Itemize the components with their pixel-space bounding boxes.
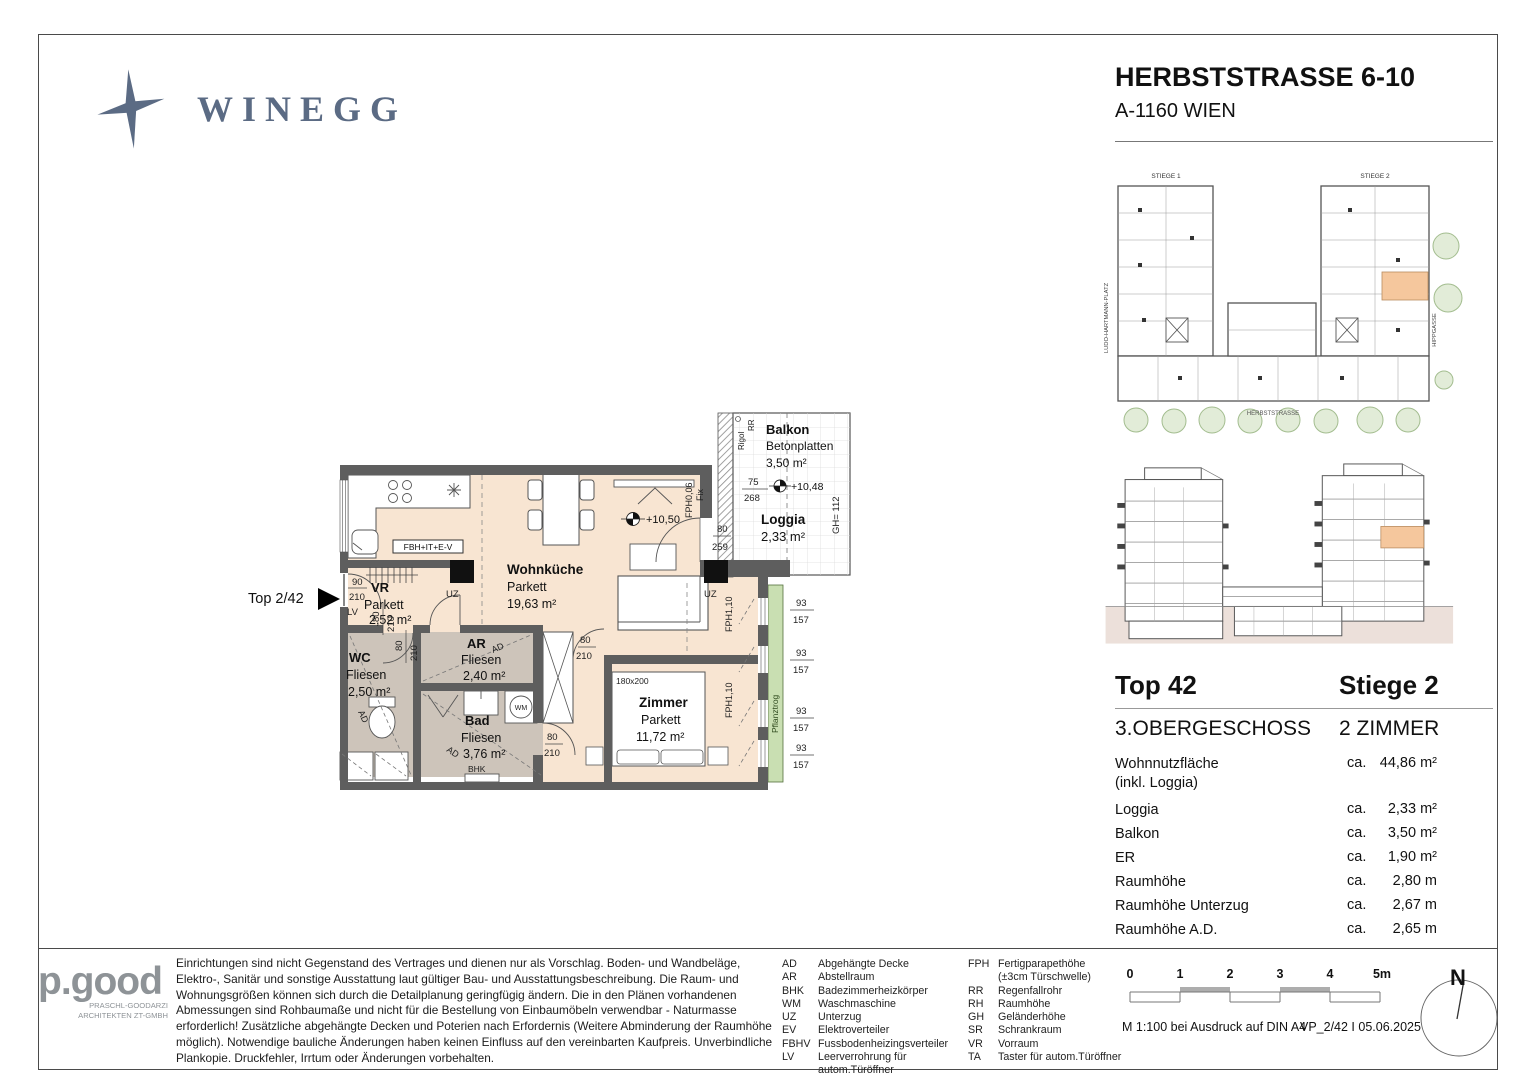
elevation-value-balcony: +10,48 — [791, 481, 824, 493]
svg-text:Balkon: Balkon — [766, 422, 809, 437]
svg-text:210: 210 — [386, 616, 397, 632]
svg-text:Fliesen: Fliesen — [346, 668, 386, 682]
svg-text:80: 80 — [717, 524, 728, 535]
svg-text:75: 75 — [748, 477, 759, 488]
detail-row: Balkon ca.3,50 m² — [1115, 825, 1493, 849]
bathroom-radiator — [465, 774, 499, 782]
svg-text:5m: 5m — [1373, 967, 1391, 981]
details-separator — [1115, 708, 1493, 709]
detail-row: Wohnnutzfläche (inkl. Loggia) ca.44,86 m… — [1115, 755, 1493, 801]
unit-number: Top 42 — [1115, 670, 1197, 700]
unit-details-panel: Top 42 Stiege 2 3.OBERGESCHOSS 2 ZIMMER … — [1115, 670, 1493, 945]
detail-row: Raumhöhe Unterzug ca.2,67 m — [1115, 897, 1493, 921]
svg-text:WC: WC — [349, 650, 371, 665]
north-arrow: N — [1412, 960, 1507, 1062]
svg-text:AR: AR — [467, 636, 486, 651]
wardrobe — [543, 632, 573, 723]
project-title: HERBSTSTRASSE 6-10 — [1115, 62, 1415, 93]
sink-icon — [352, 530, 378, 554]
svg-text:Fliesen: Fliesen — [461, 731, 501, 745]
winegg-logo: WINEGG — [95, 66, 407, 152]
svg-text:80: 80 — [580, 635, 591, 646]
elevation-value: +10,50 — [646, 514, 680, 526]
svg-text:157: 157 — [793, 723, 809, 734]
svg-text:4: 4 — [1327, 967, 1334, 981]
scale-note: M 1:100 bei Ausdruck auf DIN A4 — [1122, 1020, 1306, 1034]
svg-text:Zimmer: Zimmer — [639, 695, 689, 710]
svg-text:93: 93 — [796, 743, 807, 754]
svg-text:93: 93 — [796, 706, 807, 717]
svg-text:Wohnküche: Wohnküche — [507, 562, 584, 577]
svg-text:210: 210 — [544, 748, 560, 759]
svg-text:157: 157 — [793, 665, 809, 676]
svg-text:FPH0,06: FPH0,06 — [684, 482, 694, 518]
svg-text:80: 80 — [371, 611, 382, 622]
svg-text:FPH1,10: FPH1,10 — [724, 682, 734, 718]
svg-text:0: 0 — [1127, 967, 1134, 981]
svg-text:Loggia: Loggia — [761, 512, 806, 527]
svg-text:3,76 m²: 3,76 m² — [463, 747, 505, 761]
title-separator — [1115, 141, 1493, 142]
svg-text:259: 259 — [712, 542, 728, 553]
nightstand — [586, 747, 603, 765]
brand-name: WINEGG — [197, 88, 407, 130]
svg-text:90: 90 — [352, 577, 363, 588]
svg-text:Parkett: Parkett — [641, 713, 681, 727]
svg-text:LV: LV — [347, 607, 359, 618]
sink-symbol-icon — [447, 483, 461, 497]
svg-text:180x200: 180x200 — [616, 676, 649, 686]
plan-version: VP_2/42 I 05.06.2025 — [1300, 1020, 1421, 1034]
svg-text:Rigol: Rigol — [737, 432, 746, 450]
street-left-label: LUDO-HARTMANN-PLATZ — [1104, 282, 1110, 353]
site-plan: STIEGE 1 STIEGE 2 LUDO-HARTMANN-PLATZ HI… — [1078, 158, 1508, 443]
svg-text:Betonplatten: Betonplatten — [766, 439, 833, 453]
stiege2-label: STIEGE 2 — [1360, 173, 1390, 180]
svg-text:19,63 m²: 19,63 m² — [507, 597, 556, 611]
svg-text:3: 3 — [1277, 967, 1284, 981]
fbh-label: FBH+IT+E-V — [404, 542, 453, 552]
building-sections — [1083, 462, 1503, 667]
washbasin — [464, 691, 498, 715]
svg-text:Top 2/42: Top 2/42 — [248, 591, 304, 607]
project-address: A-1160 WIEN — [1115, 100, 1236, 123]
svg-text:3,50 m²: 3,50 m² — [766, 456, 807, 470]
unit-arrow-icon — [318, 588, 340, 610]
svg-text:1: 1 — [1177, 967, 1184, 981]
architect-logo-text: p.good — [38, 964, 168, 999]
svg-text:BHK: BHK — [468, 764, 486, 774]
staircase-label: Stiege 2 — [1339, 670, 1439, 701]
winegg-star-icon — [95, 66, 169, 152]
svg-text:210: 210 — [576, 651, 592, 662]
svg-text:VR: VR — [371, 580, 390, 595]
svg-text:FPH1,10: FPH1,10 — [724, 596, 734, 632]
svg-text:RR: RR — [747, 419, 756, 431]
detail-row: ER ca.1,90 m² — [1115, 849, 1493, 873]
svg-text:11,72 m²: 11,72 m² — [636, 730, 684, 744]
unit-marker: Top 2/42 — [248, 588, 340, 610]
svg-text:GH= 112: GH= 112 — [831, 496, 842, 534]
highlighted-unit — [1382, 272, 1428, 300]
svg-text:93: 93 — [796, 648, 807, 659]
svg-text:2: 2 — [1227, 967, 1234, 981]
nightstand — [708, 747, 728, 765]
street-bottom-label: HERBSTSTRASSE — [1247, 411, 1299, 417]
svg-text:93: 93 — [796, 598, 807, 609]
svg-text:Fliesen: Fliesen — [461, 653, 501, 667]
detail-row: Loggia ca.2,33 m² — [1115, 801, 1493, 825]
svg-text:210: 210 — [349, 592, 365, 603]
svg-text:210: 210 — [409, 645, 420, 661]
street-right-label: HIPPGASSE — [1432, 313, 1438, 347]
plan-sheet: WINEGG HERBSTSTRASSE 6-10 A-1160 WIEN — [0, 0, 1527, 1080]
svg-text:Pflanztrog: Pflanztrog — [770, 694, 780, 733]
svg-text:2,40 m²: 2,40 m² — [463, 669, 505, 683]
svg-text:157: 157 — [793, 615, 809, 626]
architect-type: ARCHITEKTEN ZT-GMBH — [38, 1011, 168, 1020]
detail-row: Raumhöhe A.D. ca.2,65 m — [1115, 921, 1493, 945]
legend-left-column: ADAbgehängte Decke ARAbstellraum BHKBade… — [782, 958, 967, 1077]
planter-strip — [768, 585, 783, 782]
stiege1-label: STIEGE 1 — [1151, 173, 1181, 180]
floor-level: 3.OBERGESCHOSS — [1115, 717, 1311, 740]
architect-logo: p.good PRASCHL-GOODARZI ARCHITEKTEN ZT-G… — [38, 964, 168, 1020]
floor-plan: FBH+IT+E-V +10,50 +10,48 Wohnküche Parke… — [240, 400, 865, 800]
svg-text:268: 268 — [744, 493, 760, 504]
svg-text:Bad: Bad — [465, 713, 490, 728]
disclaimer-text: Einrichtungen sind nicht Gegenstand des … — [176, 956, 776, 1067]
toilet — [369, 697, 395, 738]
scale-bar: 0 1 2 3 4 5m — [1118, 966, 1418, 1016]
svg-text:80: 80 — [394, 640, 405, 651]
svg-text:157: 157 — [793, 760, 809, 771]
footer-separator — [38, 948, 1497, 949]
room-count: 2 ZIMMER — [1339, 717, 1439, 741]
svg-text:UZ: UZ — [446, 589, 459, 600]
svg-text:2,33 m²: 2,33 m² — [761, 529, 806, 544]
highlighted-unit-section — [1381, 526, 1424, 547]
svg-text:80: 80 — [547, 732, 558, 743]
svg-text:Fix: Fix — [695, 489, 705, 501]
svg-text:WM: WM — [515, 705, 528, 712]
svg-text:2,50 m²: 2,50 m² — [348, 685, 390, 699]
svg-text:UZ: UZ — [704, 589, 717, 600]
svg-text:Parkett: Parkett — [364, 598, 404, 612]
north-label: N — [1450, 965, 1466, 990]
detail-row: Raumhöhe ca.2,80 m — [1115, 873, 1493, 897]
svg-text:Parkett: Parkett — [507, 580, 547, 594]
